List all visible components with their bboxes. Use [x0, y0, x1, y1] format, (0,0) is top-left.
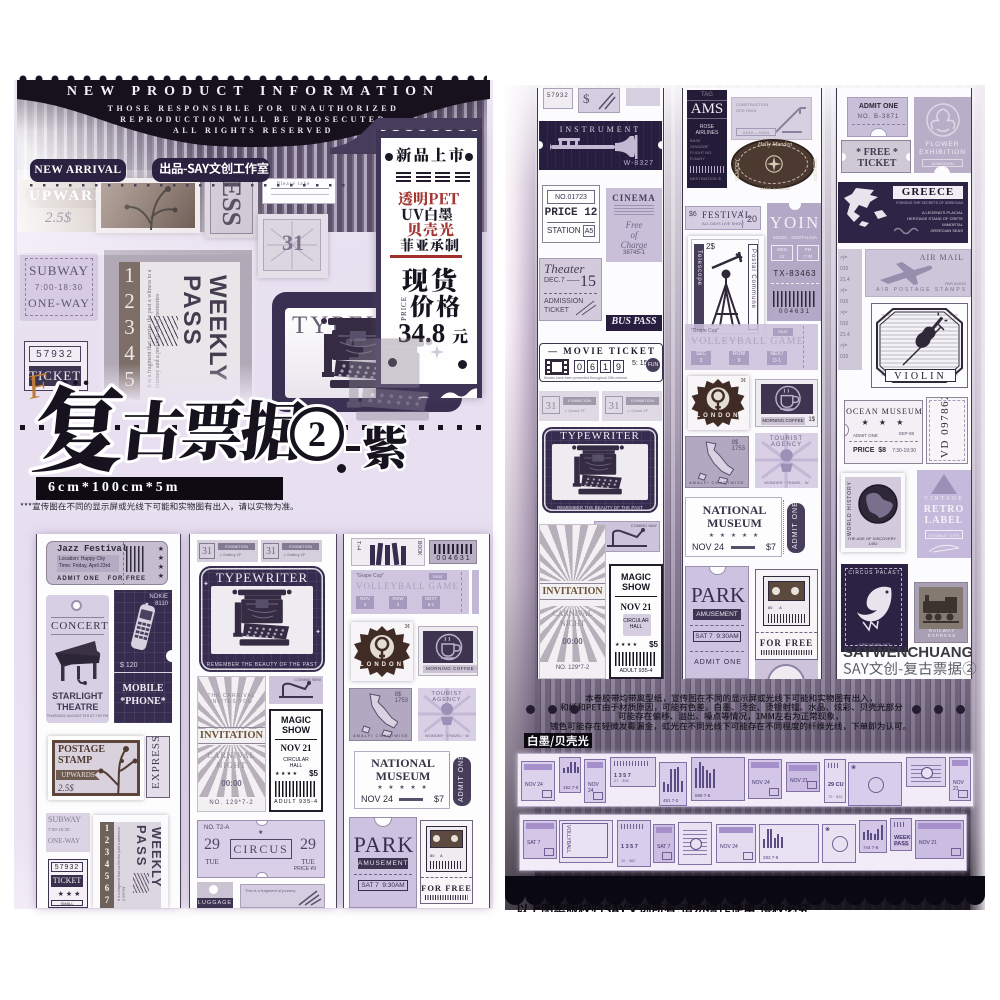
svg-text:2: 2 [308, 414, 326, 454]
